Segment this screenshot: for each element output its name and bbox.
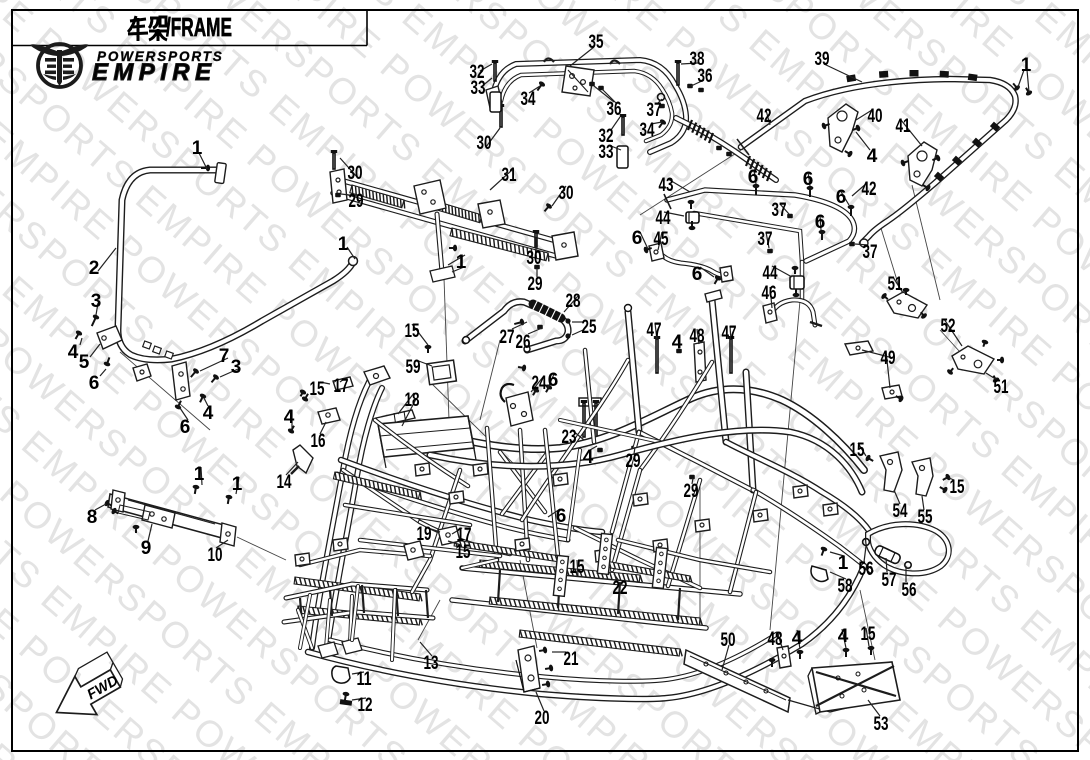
svg-text:1: 1: [1021, 55, 1032, 76]
svg-text:56: 56: [902, 580, 917, 601]
svg-text:54: 54: [893, 501, 908, 522]
svg-text:51: 51: [994, 377, 1009, 398]
svg-text:10: 10: [208, 545, 223, 566]
svg-text:18: 18: [405, 390, 420, 411]
svg-text:57: 57: [882, 570, 897, 591]
svg-text:4: 4: [203, 403, 214, 424]
svg-text:44: 44: [763, 263, 778, 284]
svg-text:15: 15: [861, 624, 876, 645]
svg-text:11: 11: [357, 669, 372, 690]
svg-text:30: 30: [527, 248, 542, 269]
svg-text:34: 34: [521, 89, 536, 110]
svg-text:59: 59: [406, 357, 421, 378]
svg-text:49: 49: [881, 348, 896, 369]
svg-text:2: 2: [89, 258, 100, 279]
svg-text:4: 4: [284, 407, 295, 428]
svg-text:48: 48: [768, 629, 783, 650]
svg-text:21: 21: [564, 649, 579, 670]
svg-text:37: 37: [758, 229, 773, 250]
svg-text:29: 29: [626, 451, 641, 472]
svg-text:4: 4: [583, 447, 594, 468]
svg-text:15: 15: [950, 477, 965, 498]
svg-text:33: 33: [471, 78, 486, 99]
svg-text:48: 48: [690, 326, 705, 347]
svg-text:23: 23: [562, 427, 577, 448]
svg-text:3: 3: [91, 291, 102, 312]
svg-text:6: 6: [556, 506, 567, 527]
svg-text:6: 6: [632, 228, 643, 249]
svg-text:30: 30: [559, 183, 574, 204]
svg-text:43: 43: [659, 175, 674, 196]
svg-text:1: 1: [338, 234, 349, 255]
svg-text:35: 35: [589, 32, 604, 53]
svg-text:12: 12: [358, 695, 373, 716]
svg-text:36: 36: [607, 99, 622, 120]
svg-text:22: 22: [613, 578, 628, 599]
svg-text:29: 29: [528, 274, 543, 295]
svg-text:6: 6: [815, 212, 826, 233]
svg-text:46: 46: [762, 283, 777, 304]
svg-text:39: 39: [815, 49, 830, 70]
svg-text:1: 1: [456, 252, 467, 273]
svg-text:56: 56: [859, 559, 874, 580]
svg-text:16: 16: [311, 431, 326, 452]
svg-text:13: 13: [424, 653, 439, 674]
svg-text:1: 1: [232, 474, 243, 495]
svg-text:4: 4: [792, 628, 803, 649]
svg-text:30: 30: [477, 133, 492, 154]
svg-text:4: 4: [867, 146, 878, 167]
svg-text:47: 47: [647, 320, 662, 341]
svg-text:14: 14: [277, 472, 292, 493]
svg-text:55: 55: [918, 507, 933, 528]
svg-text:36: 36: [698, 66, 713, 87]
svg-text:15: 15: [310, 379, 325, 400]
svg-text:24: 24: [532, 373, 547, 394]
svg-text:4: 4: [672, 332, 683, 353]
svg-text:30: 30: [348, 163, 363, 184]
svg-text:29: 29: [349, 191, 364, 212]
svg-text:9: 9: [141, 538, 152, 559]
svg-text:5: 5: [79, 352, 90, 373]
svg-text:6: 6: [836, 187, 847, 208]
svg-text:33: 33: [599, 142, 614, 163]
svg-text:1: 1: [838, 553, 849, 574]
svg-text:25: 25: [582, 317, 597, 338]
svg-text:26: 26: [516, 332, 531, 353]
svg-text:15: 15: [405, 321, 420, 342]
svg-text:7: 7: [219, 346, 230, 367]
svg-text:37: 37: [772, 200, 787, 221]
svg-text:15: 15: [850, 440, 865, 461]
svg-text:1: 1: [192, 138, 203, 159]
svg-text:1: 1: [194, 464, 205, 485]
svg-text:44: 44: [656, 208, 671, 229]
svg-text:42: 42: [862, 179, 877, 200]
svg-text:29: 29: [684, 481, 699, 502]
svg-text:40: 40: [868, 106, 883, 127]
svg-text:6: 6: [89, 373, 100, 394]
svg-text:42: 42: [757, 106, 772, 127]
svg-text:15: 15: [456, 542, 471, 563]
svg-text:20: 20: [535, 708, 550, 729]
svg-text:28: 28: [566, 291, 581, 312]
svg-text:15: 15: [570, 557, 585, 578]
svg-text:51: 51: [888, 274, 903, 295]
svg-text:19: 19: [417, 524, 432, 545]
svg-text:17: 17: [334, 376, 349, 397]
svg-text:3: 3: [231, 357, 242, 378]
svg-text:/FRAME: /FRAME: [166, 12, 232, 42]
svg-text:4: 4: [68, 342, 79, 363]
svg-text:52: 52: [941, 316, 956, 337]
svg-text:27: 27: [500, 327, 515, 348]
svg-text:47: 47: [722, 323, 737, 344]
svg-text:8: 8: [87, 507, 98, 528]
svg-text:37: 37: [863, 242, 878, 263]
svg-text:6: 6: [692, 264, 703, 285]
svg-text:41: 41: [896, 116, 911, 137]
svg-text:4: 4: [838, 626, 849, 647]
svg-text:45: 45: [654, 229, 669, 250]
svg-text:53: 53: [874, 714, 889, 735]
svg-text:37: 37: [647, 100, 662, 121]
svg-text:6: 6: [748, 167, 759, 188]
svg-text:34: 34: [640, 120, 655, 141]
svg-text:50: 50: [721, 630, 736, 651]
svg-text:6: 6: [803, 169, 814, 190]
svg-text:31: 31: [502, 165, 517, 186]
svg-text:6: 6: [548, 370, 559, 391]
svg-text:6: 6: [180, 417, 191, 438]
svg-text:58: 58: [838, 576, 853, 597]
